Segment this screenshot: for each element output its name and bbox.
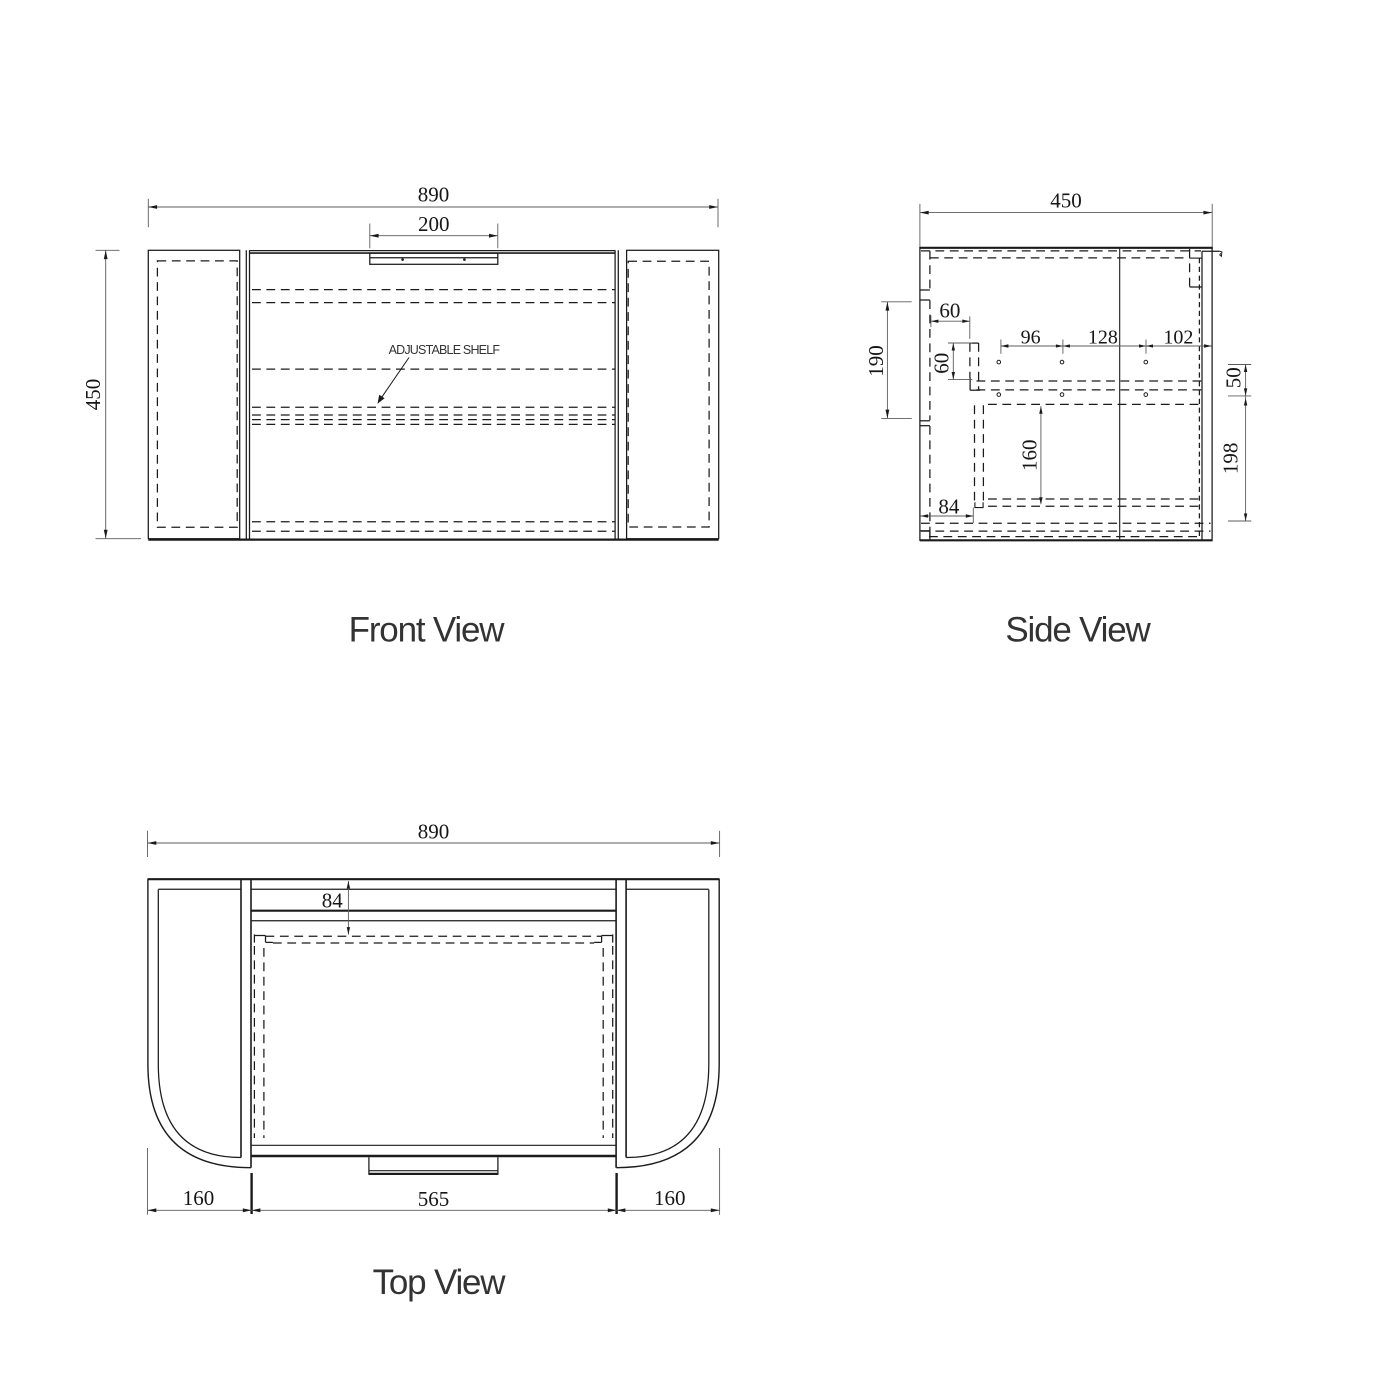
svg-text:160: 160 — [183, 1186, 215, 1210]
svg-text:200: 200 — [418, 212, 450, 236]
svg-text:84: 84 — [322, 889, 344, 913]
svg-text:60: 60 — [930, 353, 954, 374]
svg-text:Side View: Side View — [1005, 611, 1151, 650]
svg-text:450: 450 — [1050, 189, 1082, 213]
svg-text:60: 60 — [939, 298, 960, 322]
svg-text:ADJUSTABLE SHELF: ADJUSTABLE SHELF — [389, 343, 501, 357]
svg-text:450: 450 — [81, 379, 105, 411]
svg-text:198: 198 — [1219, 443, 1243, 475]
svg-text:190: 190 — [864, 345, 888, 377]
svg-text:102: 102 — [1163, 326, 1193, 348]
svg-text:50: 50 — [1222, 367, 1246, 388]
svg-text:128: 128 — [1088, 326, 1118, 348]
svg-text:890: 890 — [418, 819, 450, 843]
svg-text:Top View: Top View — [373, 1263, 507, 1302]
svg-text:890: 890 — [418, 183, 450, 207]
svg-text:160: 160 — [654, 1186, 686, 1210]
svg-text:565: 565 — [418, 1187, 450, 1211]
svg-text:160: 160 — [1018, 440, 1042, 472]
svg-text:84: 84 — [938, 495, 960, 519]
svg-text:96: 96 — [1021, 326, 1041, 348]
svg-text:Front View: Front View — [349, 611, 506, 650]
